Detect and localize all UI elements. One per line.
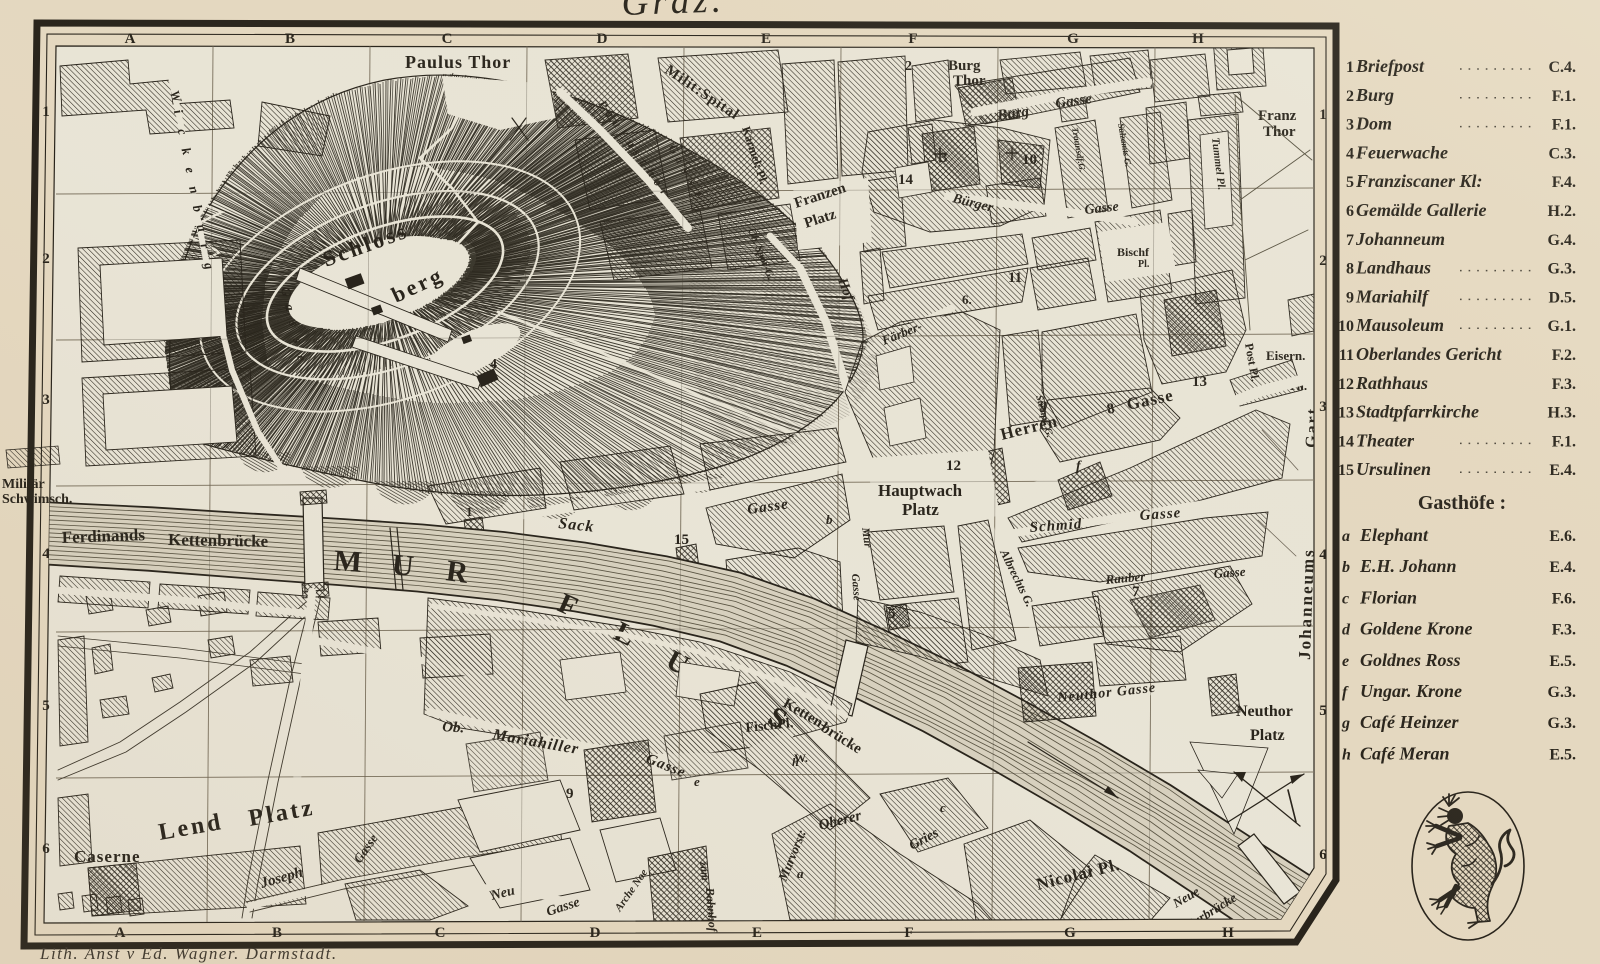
svg-text:E.H. Johann: E.H. Johann [1359, 556, 1457, 576]
svg-text:14: 14 [898, 172, 914, 188]
svg-text:Gasse: Gasse [849, 573, 863, 601]
svg-text:2: 2 [42, 251, 50, 267]
svg-text:F: F [908, 31, 917, 47]
svg-text:10: 10 [1022, 152, 1037, 168]
svg-text:Ob.: Ob. [442, 719, 465, 737]
svg-text:F.1.: F.1. [1552, 88, 1576, 105]
svg-text:Lith. Anst v Ed. Wagner. Darms: Lith. Anst v Ed. Wagner. Darmstadt. [39, 944, 338, 963]
svg-text:9: 9 [1346, 289, 1354, 306]
svg-text:1: 1 [42, 104, 50, 120]
svg-text:Burg: Burg [948, 58, 981, 74]
svg-text:5: 5 [1319, 703, 1327, 719]
svg-text:6: 6 [42, 841, 50, 857]
svg-text:2: 2 [1346, 88, 1354, 105]
svg-text:e: e [694, 774, 700, 789]
svg-text:F.3.: F.3. [1552, 376, 1576, 393]
svg-text:zum: zum [697, 860, 711, 882]
svg-text:E.4.: E.4. [1549, 559, 1576, 576]
svg-text:Dom: Dom [1355, 114, 1392, 134]
svg-text:Café Heinzer: Café Heinzer [1360, 712, 1459, 732]
svg-text:E.4.: E.4. [1549, 462, 1576, 479]
svg-text:13: 13 [1338, 405, 1354, 422]
svg-text:Platz: Platz [1250, 727, 1285, 744]
svg-text:E.6.: E.6. [1549, 528, 1576, 545]
svg-text:Briefpost: Briefpost [1355, 56, 1425, 76]
svg-text:Neuthor: Neuthor [1236, 703, 1293, 720]
svg-text:Ursulinen: Ursulinen [1356, 459, 1431, 479]
svg-text:1: 1 [1346, 59, 1354, 76]
svg-text:Feuerwache: Feuerwache [1355, 142, 1448, 162]
svg-text:Landhaus: Landhaus [1355, 258, 1431, 278]
svg-text:Mariahilf: Mariahilf [1355, 286, 1430, 306]
svg-text:B: B [272, 925, 282, 941]
svg-text:Gasthöfe :: Gasthöfe : [1418, 492, 1506, 514]
svg-text:2: 2 [905, 59, 912, 74]
svg-text:4: 4 [1319, 547, 1327, 563]
svg-text:G.1.: G.1. [1548, 318, 1576, 335]
svg-text:Gemälde Gallerie: Gemälde Gallerie [1356, 200, 1486, 220]
svg-text:G.3.: G.3. [1548, 715, 1576, 732]
svg-text:H: H [1192, 31, 1204, 47]
svg-text:A: A [115, 925, 126, 941]
svg-text:Elephant: Elephant [1359, 525, 1429, 545]
svg-text:14: 14 [1338, 433, 1354, 450]
svg-text:U: U [390, 548, 417, 583]
svg-text:Stadtpfarrkirche: Stadtpfarrkirche [1356, 402, 1479, 422]
svg-text:R: R [444, 554, 472, 590]
svg-text:10: 10 [1338, 318, 1354, 335]
svg-text:e: e [1342, 653, 1349, 670]
svg-text:F.1.: F.1. [1552, 433, 1576, 450]
svg-text:12: 12 [946, 458, 961, 474]
svg-text:a: a [1342, 528, 1350, 545]
svg-text:Gasse: Gasse [1139, 505, 1182, 524]
svg-text:G.3.: G.3. [1548, 684, 1576, 701]
svg-text:c: c [940, 800, 946, 815]
svg-text:3: 3 [940, 150, 948, 166]
svg-text:6: 6 [1346, 203, 1354, 220]
svg-text:4: 4 [1346, 145, 1354, 162]
svg-text:11: 11 [1339, 347, 1354, 364]
svg-text:g: g [1039, 397, 1047, 412]
svg-text:Graz.: Graz. [621, 0, 726, 24]
svg-text:Ungar. Krone: Ungar. Krone [1360, 681, 1462, 701]
svg-text:Goldene Krone: Goldene Krone [1360, 619, 1473, 639]
svg-text:b: b [826, 512, 833, 527]
svg-text:Hauptwach: Hauptwach [878, 481, 963, 500]
svg-text:1: 1 [1319, 107, 1327, 123]
svg-text:11: 11 [1008, 270, 1022, 286]
svg-text:F: F [904, 925, 913, 941]
svg-text:Schwimsch.: Schwimsch. [2, 492, 72, 507]
svg-text:1: 1 [466, 504, 473, 519]
svg-text:G: G [1067, 31, 1079, 47]
svg-text:E.5.: E.5. [1549, 746, 1576, 763]
svg-text:Oberlandes Gericht: Oberlandes Gericht [1356, 344, 1502, 364]
svg-text:Franziscaner Kl:: Franziscaner Kl: [1355, 171, 1483, 191]
svg-text:b: b [1342, 559, 1350, 576]
svg-text:7: 7 [1346, 232, 1354, 249]
svg-text:G.3.: G.3. [1548, 261, 1576, 278]
svg-text:Goldnes Ross: Goldnes Ross [1360, 650, 1461, 670]
svg-text:H.2.: H.2. [1548, 203, 1576, 220]
svg-text:F.3.: F.3. [1552, 622, 1576, 639]
svg-text:Kettenbrücke: Kettenbrücke [168, 530, 269, 551]
svg-text:Rathhaus: Rathhaus [1355, 373, 1428, 393]
svg-text:G: G [1064, 925, 1076, 941]
svg-text:5: 5 [1346, 174, 1354, 191]
svg-text:d: d [1342, 622, 1351, 639]
svg-text:2: 2 [1319, 253, 1327, 269]
svg-text:Eisern.: Eisern. [1266, 348, 1305, 363]
svg-text:D: D [597, 31, 608, 47]
svg-text:C: C [435, 925, 446, 941]
svg-text:Thor: Thor [953, 73, 986, 89]
svg-text:h: h [1342, 746, 1351, 763]
svg-text:c: c [1342, 590, 1349, 607]
svg-text:3: 3 [1319, 399, 1327, 415]
svg-text:4: 4 [490, 357, 497, 372]
svg-text:6.: 6. [962, 292, 972, 307]
svg-text:D: D [590, 925, 601, 941]
svg-text:G.4.: G.4. [1548, 232, 1576, 249]
svg-text:E.5.: E.5. [1549, 653, 1576, 670]
svg-text:Café Meran: Café Meran [1360, 743, 1450, 763]
svg-text:g: g [1341, 715, 1350, 732]
svg-text:13: 13 [1192, 374, 1207, 390]
svg-text:C.4.: C.4. [1548, 59, 1576, 76]
svg-text:Florian: Florian [1359, 587, 1417, 607]
svg-text:E: E [761, 31, 771, 47]
svg-text:3: 3 [1346, 117, 1354, 134]
svg-text:Burg: Burg [1355, 85, 1394, 105]
svg-text:F.1.: F.1. [1552, 117, 1576, 134]
svg-text:Johanneum: Johanneum [1355, 229, 1445, 249]
svg-text:A: A [125, 31, 136, 47]
svg-text:6: 6 [1319, 847, 1327, 863]
svg-text:Pl.: Pl. [1138, 259, 1150, 270]
svg-text:8: 8 [1346, 261, 1354, 278]
svg-text:7: 7 [1132, 584, 1140, 600]
svg-text:Militär: Militär [2, 477, 45, 492]
svg-text:B: B [285, 31, 295, 47]
svg-text:Theater: Theater [1356, 430, 1415, 450]
svg-text:H: H [1222, 925, 1234, 941]
svg-text:Franz: Franz [1258, 108, 1297, 124]
svg-text:M: M [333, 544, 366, 579]
svg-text:Bischf: Bischf [1117, 245, 1150, 259]
svg-text:F.6.: F.6. [1552, 590, 1576, 607]
svg-text:15: 15 [1338, 462, 1354, 479]
svg-text:D.5.: D.5. [1548, 289, 1576, 306]
svg-text:C.3.: C.3. [1548, 145, 1576, 162]
svg-text:F.4.: F.4. [1552, 174, 1576, 191]
svg-text:Ferdinands: Ferdinands [61, 525, 145, 547]
svg-text:12: 12 [1338, 376, 1354, 393]
svg-text:Mausoleum: Mausoleum [1355, 315, 1444, 335]
svg-text:3: 3 [42, 392, 50, 408]
svg-text:E: E [752, 925, 762, 941]
svg-text:5: 5 [42, 698, 50, 714]
svg-text:H.3.: H.3. [1548, 405, 1576, 422]
svg-text:Platz: Platz [902, 500, 939, 519]
svg-text:F.2.: F.2. [1552, 347, 1576, 364]
svg-text:Paulus Thor: Paulus Thor [405, 52, 511, 72]
svg-text:C: C [442, 31, 453, 47]
